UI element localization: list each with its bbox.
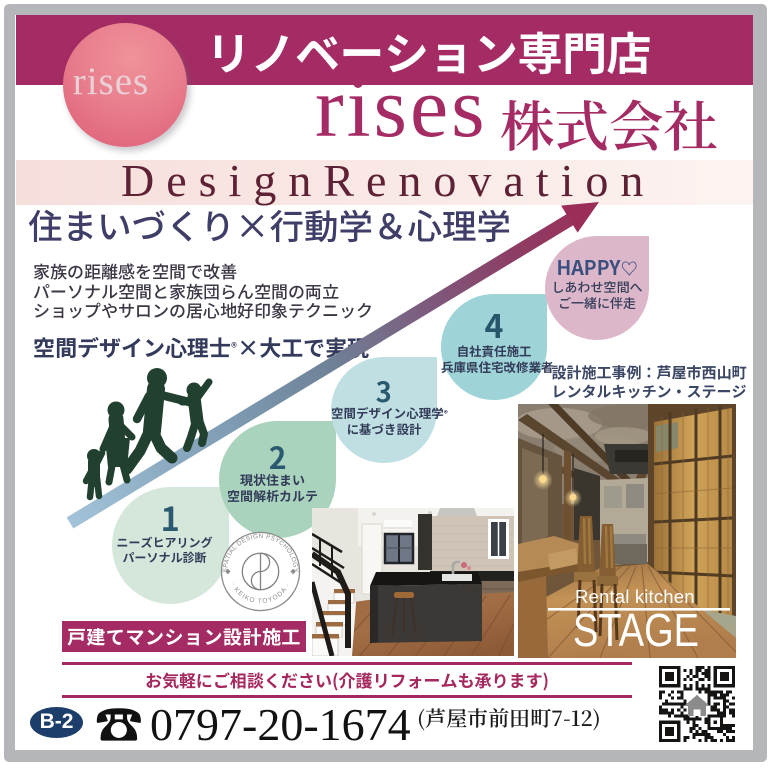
svg-text:STAGE: STAGE [573, 604, 699, 656]
